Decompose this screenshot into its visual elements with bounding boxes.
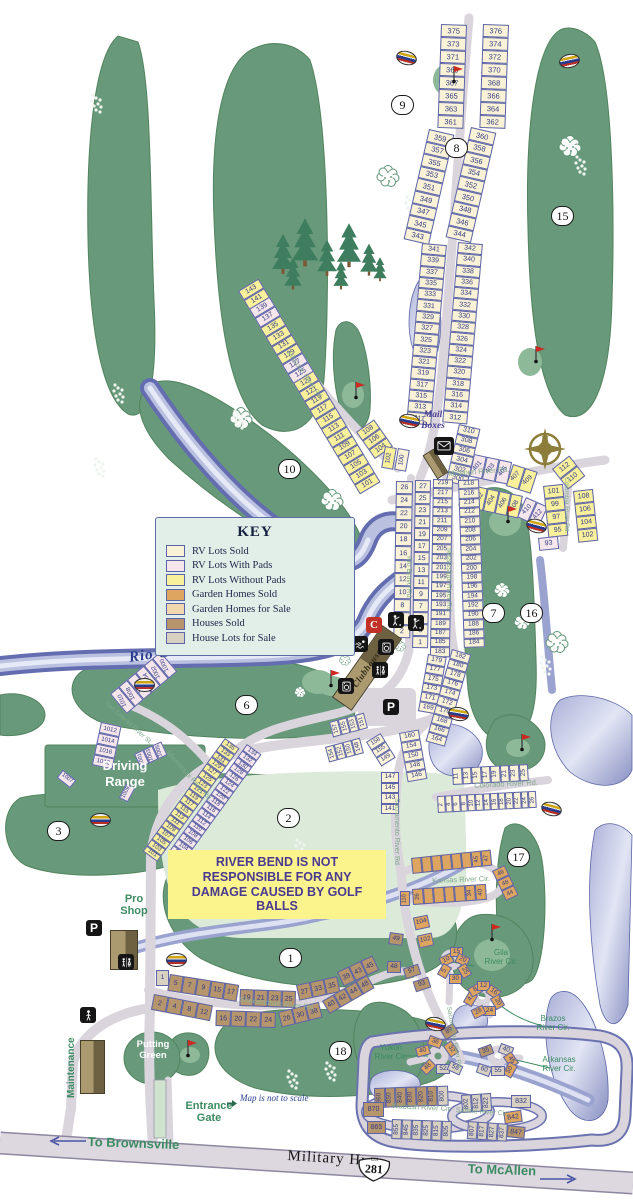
legend-swatch-nopads [166, 574, 185, 586]
tee-marker-icon [134, 678, 155, 692]
hole-16-marker: 16 [520, 603, 543, 623]
lot-cell: 805 [441, 1121, 452, 1141]
lot-cell: 847 [506, 1125, 525, 1139]
hole-1-marker: 1 [279, 948, 302, 968]
lot-cell: 26 [528, 791, 536, 808]
hole-8-marker: 8 [445, 138, 468, 158]
restroom-icon [118, 954, 134, 970]
lot-cell: 211 [432, 516, 452, 526]
parking-icon: P [383, 699, 399, 715]
lot-cell: 21 [414, 516, 430, 528]
legend-label: House Lots for Sale [192, 633, 276, 644]
lot-cell: 865 [367, 1121, 386, 1134]
map-label: Mississippi River Rd [444, 548, 452, 611]
lot-cell: 102 [577, 528, 598, 543]
legend-item: Garden Homes for Sale [166, 603, 344, 615]
lot-cell: 93 [538, 536, 559, 551]
legend-title: KEY [166, 524, 344, 541]
right-arrow-icon [538, 1172, 580, 1190]
lot-cell: 7 [413, 600, 429, 612]
laundry-icon [338, 678, 354, 694]
lot-cell: 209 [432, 526, 452, 536]
map-label: Pro Shop [112, 893, 156, 918]
pin-flag-icon [515, 732, 533, 752]
lot-cell: 22 [395, 507, 412, 520]
legend-item: RV Lots Without Pads [166, 574, 344, 586]
hole-10-marker: 10 [278, 459, 301, 479]
lot-cell: 361 [437, 115, 463, 129]
legend-label: RV Lots Without Pads [192, 575, 286, 586]
lot-cell: 40 [475, 884, 487, 901]
lot-group: 93 [538, 536, 559, 551]
lot-cell: 12 [195, 1003, 213, 1022]
lot-cell: 20 [395, 520, 412, 533]
hole-2-marker: 2 [277, 808, 300, 828]
lot-cell: 184 [464, 638, 485, 648]
lot-group: 855845835825815805 [391, 1119, 452, 1141]
lot-cell: 24 [396, 494, 413, 507]
lot-cell: 11 [413, 576, 429, 588]
lot-cell: 8 [394, 599, 411, 612]
legend-item: Houses Sold [166, 618, 344, 630]
legend-label: Houses Sold [192, 618, 245, 629]
legend-label: RV Lots Sold [192, 546, 249, 557]
lot-cell: 363 [438, 102, 464, 116]
lot-cell: 24 [260, 1012, 276, 1029]
golfer-icon [388, 612, 404, 628]
disclaimer-text: RIVER BEND IS NOT RESPONSIBLE FOR ANY DA… [168, 850, 386, 919]
legend-items: RV Lots SoldRV Lots With PadsRV Lots Wit… [166, 545, 344, 644]
map-label: Arkansas River Cir. [528, 1056, 590, 1074]
legend-swatch-gh_sale [166, 603, 185, 615]
river-bend-resort-map: KEY RV Lots SoldRV Lots With PadsRV Lots… [0, 0, 633, 1200]
lot-cell: 15 [414, 552, 430, 564]
lot-cell: 373 [440, 37, 466, 51]
pin-flag-icon [181, 1038, 199, 1058]
lot-cell: 372 [482, 50, 508, 64]
lot-cell: 365 [438, 89, 464, 103]
lot-cell: 207 [432, 535, 452, 545]
compass-n: N [541, 435, 549, 446]
legend-item: RV Lots Sold [166, 545, 344, 557]
lot-cell: 47 [481, 850, 493, 867]
lot-cell: 30 [449, 974, 462, 984]
golfer-icon [408, 615, 424, 631]
lot-cell: 870 [363, 1102, 384, 1117]
legend-label: Garden Homes Sold [192, 589, 277, 600]
lot-cell: 215 [433, 498, 453, 508]
lot-cell: 48 [387, 961, 401, 973]
lot-cell: 26 [396, 481, 413, 494]
map-legend: KEY RV Lots SoldRV Lots With PadsRV Lots… [155, 517, 355, 656]
hole-15-marker: 15 [551, 206, 574, 226]
lot-cell: 362 [479, 115, 505, 129]
hole-6-marker: 6 [235, 695, 258, 715]
hole-18-marker: 18 [329, 1041, 352, 1061]
lot-cell: 9 [413, 588, 429, 600]
lot-cell: 20 [230, 1011, 246, 1028]
lot-group: 376374372370368366364362 [479, 24, 509, 129]
restroom-icon [372, 662, 388, 678]
tee-marker-icon [90, 813, 111, 827]
hole-17-marker: 17 [507, 847, 530, 867]
phone-icon: C [366, 617, 382, 633]
map-label: Yukon River Cir. [366, 1044, 416, 1062]
legend-swatch-h_sale [166, 632, 185, 644]
pedestrian-icon [80, 1007, 96, 1023]
lot-cell: 371 [440, 50, 466, 64]
pin-flag-icon [349, 380, 367, 400]
lot-cell: 364 [480, 102, 506, 116]
lot-cell: 25 [415, 492, 431, 504]
lot-cell: 22 [245, 1011, 261, 1028]
lot-cell: 832 [511, 1095, 531, 1108]
lot-cell: 366 [480, 89, 506, 103]
lot-group: 807817827837 [467, 1121, 508, 1142]
lot-cell: 49 [388, 932, 404, 946]
lot-cell: 213 [432, 507, 452, 517]
lot-cell: 375 [441, 24, 467, 38]
hole-9-marker: 9 [391, 95, 414, 115]
legend-label: RV Lots With Pads [192, 560, 272, 571]
lot-cell: 13 [413, 564, 429, 576]
mail-icon [434, 437, 454, 455]
pin-flag-icon [501, 504, 519, 524]
lot-cell: 17 [223, 983, 239, 1002]
lot-cell: 1 [412, 636, 428, 648]
left-arrow-icon [46, 1134, 88, 1152]
map-label: Rio Bravo Rd [404, 556, 412, 598]
lot-cell: 376 [483, 24, 509, 38]
lot-cell: 55 [491, 1066, 505, 1076]
building [80, 1040, 105, 1094]
scale-note-arrow-icon [226, 1095, 238, 1113]
lot-cell: 189 [430, 619, 450, 629]
lot-cell: 187 [430, 628, 450, 638]
map-label: Maintenance [66, 1037, 77, 1098]
lot-cell: 370 [481, 63, 507, 77]
lot-cell: 1 [156, 970, 169, 986]
map-label: Map is not to scale [240, 1093, 309, 1103]
pin-flag-icon [447, 64, 465, 84]
hole-7-marker: 7 [482, 603, 505, 623]
legend-swatch-pads [166, 560, 185, 572]
laundry-icon [378, 639, 394, 655]
lot-cell: 217 [433, 488, 453, 498]
lot-cell: 147 [381, 772, 399, 783]
lot-cell: 18 [395, 533, 412, 546]
map-label: Gila River Cir. [476, 949, 526, 967]
lot-cell: 23 [414, 504, 430, 516]
legend-item: Garden Homes Sold [166, 589, 344, 601]
lot-cell: 16 [215, 1010, 231, 1027]
legend-item: RV Lots With Pads [166, 560, 344, 572]
lot-cell: 27 [415, 480, 431, 492]
map-label: Sacramento River Rd [392, 798, 400, 865]
parking-icon: P [86, 920, 102, 936]
compass-rose-icon: N [522, 426, 568, 477]
lot-cell: 368 [481, 76, 507, 90]
legend-item: House Lots for Sale [166, 632, 344, 644]
map-label: Putting Green [127, 1040, 179, 1061]
lot-cell: 19 [414, 528, 430, 540]
lot-cell: 17 [414, 540, 430, 552]
us-281-shield: US 281 [355, 1154, 392, 1183]
map-label: To McAllen [467, 1162, 536, 1179]
map-label: Columbia River Rd. [563, 477, 570, 533]
lot-group: 16202224 [215, 1010, 276, 1028]
legend-swatch-sold [166, 545, 185, 557]
legend-swatch-h_sold [166, 618, 185, 630]
tee-marker-icon [166, 953, 187, 967]
legend-swatch-gh_sold [166, 589, 185, 601]
hole-3-marker: 3 [47, 821, 70, 841]
pin-flag-icon [529, 344, 547, 364]
pin-flag-icon [485, 922, 503, 942]
lot-cell: 145 [381, 783, 399, 794]
map-label: Driving Range [65, 758, 185, 789]
lot-cell: 185 [430, 638, 450, 648]
map-label: Brazos River Cir. [525, 1015, 581, 1033]
lot-cell: 110 [400, 891, 410, 906]
legend-label: Garden Homes for Sale [192, 604, 291, 615]
lot-cell: 191 [431, 610, 451, 620]
lot-cell: 219 [433, 479, 453, 489]
lot-cell: 374 [482, 37, 508, 51]
